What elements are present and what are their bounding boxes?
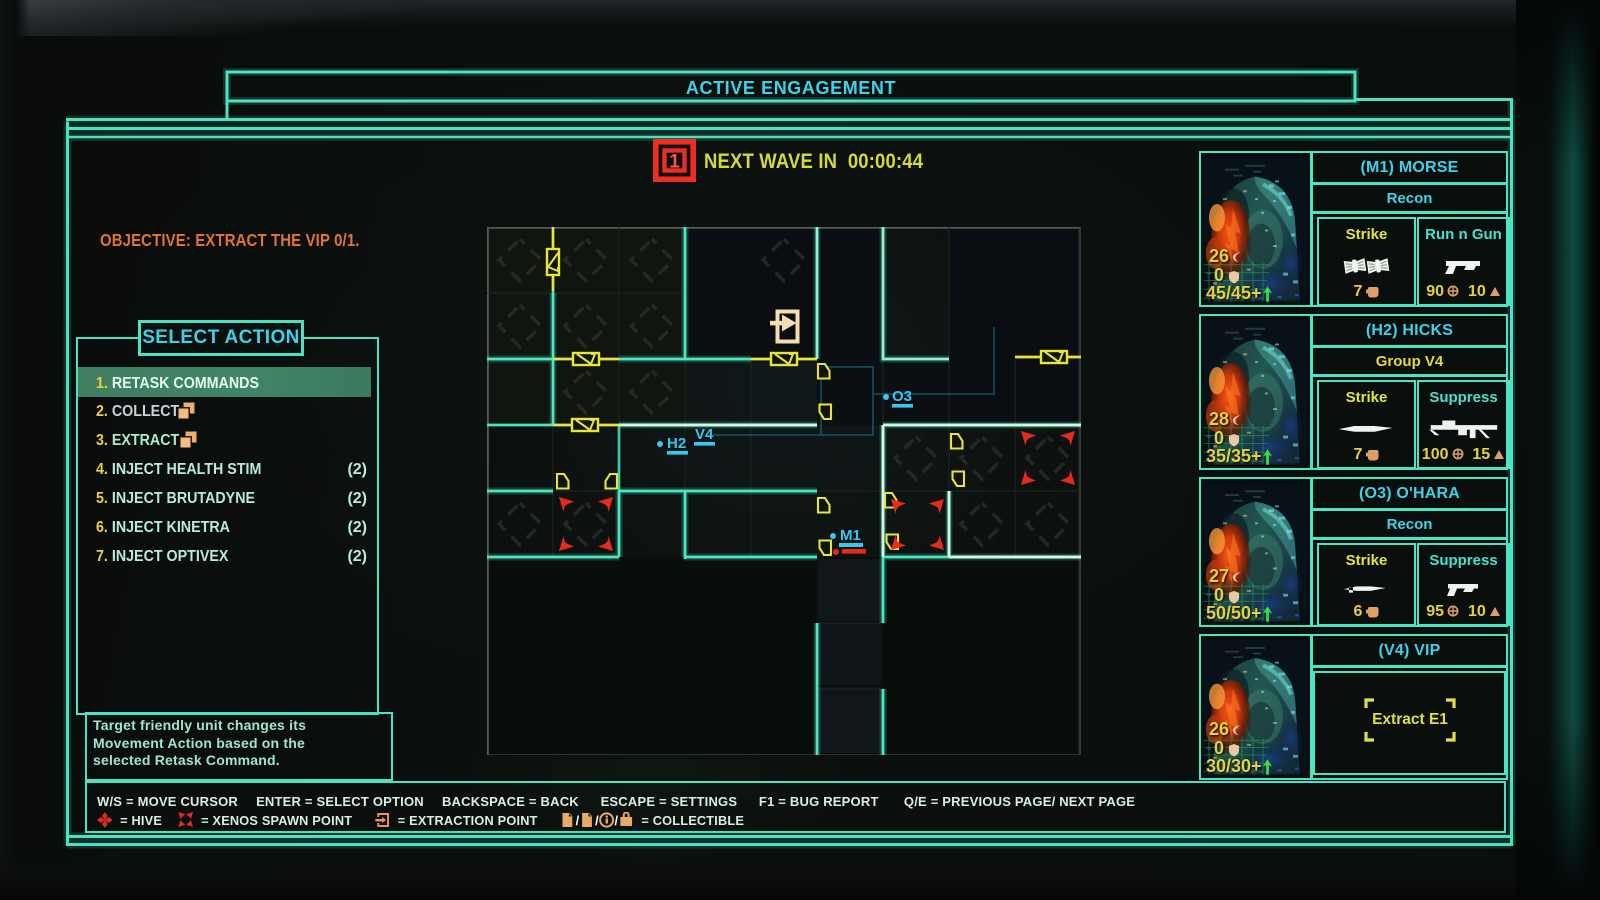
svg-text:M1: M1 — [840, 527, 861, 544]
svg-text:1: 1 — [669, 152, 680, 173]
svg-text:H2: H2 — [667, 435, 686, 452]
svg-text:V4: V4 — [695, 426, 714, 443]
svg-text:O3: O3 — [892, 388, 912, 405]
